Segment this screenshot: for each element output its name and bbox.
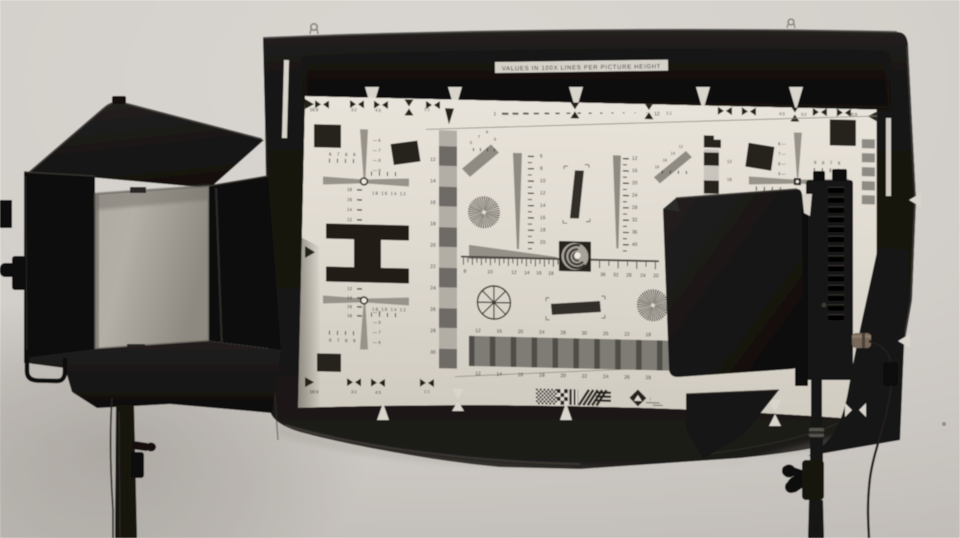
svg-text:20: 20: [653, 273, 659, 279]
svg-text:12: 12: [679, 144, 684, 149]
svg-text:1:1: 1:1: [424, 389, 430, 394]
svg-text:18: 18: [540, 227, 546, 233]
svg-text:1: 1: [494, 111, 497, 117]
svg-text:— 8: — 8: [373, 158, 381, 163]
svg-text:16: 16: [347, 304, 353, 309]
svg-text:18: 18: [347, 313, 353, 318]
svg-text:24: 24: [430, 285, 436, 291]
svg-text:14: 14: [347, 207, 353, 212]
svg-text:1:1: 1:1: [424, 107, 430, 112]
svg-text:40: 40: [632, 242, 638, 248]
svg-text:22: 22: [582, 374, 588, 380]
svg-text:20: 20: [540, 240, 546, 246]
svg-text:36: 36: [632, 230, 638, 236]
svg-text:3:2: 3:2: [351, 107, 357, 112]
svg-text:24: 24: [539, 330, 545, 336]
svg-text:12: 12: [540, 190, 546, 196]
svg-text:1:1: 1:1: [666, 111, 672, 116]
svg-text:20: 20: [632, 180, 638, 186]
svg-text:22: 22: [430, 264, 436, 270]
svg-text:3:2: 3:2: [351, 389, 357, 394]
svg-text:18 16 14 12: 18 16 14 12: [372, 191, 407, 197]
svg-text:— 9: — 9: [373, 168, 381, 173]
svg-text:28: 28: [646, 375, 652, 381]
svg-text:20: 20: [560, 373, 566, 379]
svg-text:16: 16: [536, 270, 542, 276]
svg-text:4:3: 4:3: [375, 108, 381, 113]
svg-text:10: 10: [487, 269, 493, 275]
svg-text:12: 12: [632, 156, 638, 162]
svg-text:18: 18: [646, 332, 652, 338]
svg-text:14: 14: [671, 151, 676, 156]
svg-text:14: 14: [496, 372, 502, 378]
svg-text:4:3: 4:3: [375, 390, 381, 395]
svg-text:8: 8: [464, 269, 467, 275]
svg-text:20: 20: [430, 243, 436, 249]
svg-text:16:9: 16:9: [310, 107, 319, 112]
svg-text:14: 14: [347, 295, 353, 300]
svg-text:12: 12: [430, 157, 436, 163]
svg-text:— 6: — 6: [373, 138, 381, 143]
svg-text:28: 28: [560, 330, 566, 336]
svg-text:— 9: — 9: [373, 310, 381, 315]
svg-text:20: 20: [518, 329, 524, 335]
svg-text:26: 26: [430, 307, 436, 313]
svg-text:24: 24: [603, 374, 609, 380]
svg-text:12: 12: [475, 328, 481, 334]
svg-text:16: 16: [430, 200, 436, 206]
svg-text:16: 16: [496, 329, 502, 335]
svg-text:12: 12: [654, 111, 660, 117]
svg-text:32: 32: [632, 217, 638, 223]
svg-text:9 —: 9 —: [778, 171, 786, 176]
svg-text:16: 16: [540, 215, 546, 221]
svg-text:14: 14: [540, 203, 546, 209]
svg-text:14: 14: [430, 178, 436, 184]
svg-text:16: 16: [727, 177, 733, 182]
svg-text:12: 12: [347, 286, 353, 291]
svg-text:18: 18: [548, 271, 554, 277]
svg-text:36: 36: [600, 272, 606, 278]
svg-text:18: 18: [655, 164, 660, 169]
svg-text:3:2: 3:2: [801, 112, 807, 117]
svg-text:30: 30: [582, 331, 588, 337]
svg-text:10: 10: [540, 178, 546, 184]
svg-text:18: 18: [539, 373, 545, 379]
svg-text:28: 28: [632, 205, 638, 211]
svg-text:— 8: — 8: [373, 320, 381, 325]
svg-text:22: 22: [624, 332, 630, 338]
svg-text:— 7: — 7: [373, 148, 381, 153]
svg-text:6: 6: [540, 154, 543, 160]
svg-text:16: 16: [632, 168, 638, 174]
svg-text:26: 26: [603, 331, 609, 337]
svg-text:28: 28: [430, 328, 436, 334]
svg-text:7 —: 7 —: [778, 151, 786, 156]
svg-text:24: 24: [640, 273, 646, 279]
svg-text:16:9: 16:9: [310, 389, 319, 394]
svg-text:18: 18: [430, 221, 436, 227]
svg-text:— 6: — 6: [373, 340, 381, 345]
svg-text:12: 12: [347, 217, 353, 222]
svg-text:12: 12: [727, 159, 733, 164]
svg-text:i: i: [650, 396, 651, 401]
svg-text:8: 8: [540, 166, 543, 172]
svg-text:28: 28: [626, 273, 632, 279]
svg-text:8 —: 8 —: [778, 161, 786, 166]
svg-text:24: 24: [632, 193, 638, 199]
svg-text:12: 12: [475, 371, 481, 377]
svg-text:16: 16: [663, 157, 668, 162]
svg-text:26: 26: [624, 375, 630, 381]
svg-text:14: 14: [524, 270, 530, 276]
svg-text:16: 16: [518, 372, 524, 378]
svg-text:12: 12: [511, 270, 517, 276]
svg-text:30: 30: [430, 350, 436, 356]
svg-text:18: 18: [347, 187, 353, 192]
svg-text:— 7: — 7: [373, 330, 381, 335]
svg-text:4:3: 4:3: [779, 111, 785, 116]
svg-text:16: 16: [347, 197, 353, 202]
svg-text:6 —: 6 —: [778, 141, 786, 146]
svg-text:32: 32: [613, 272, 619, 278]
